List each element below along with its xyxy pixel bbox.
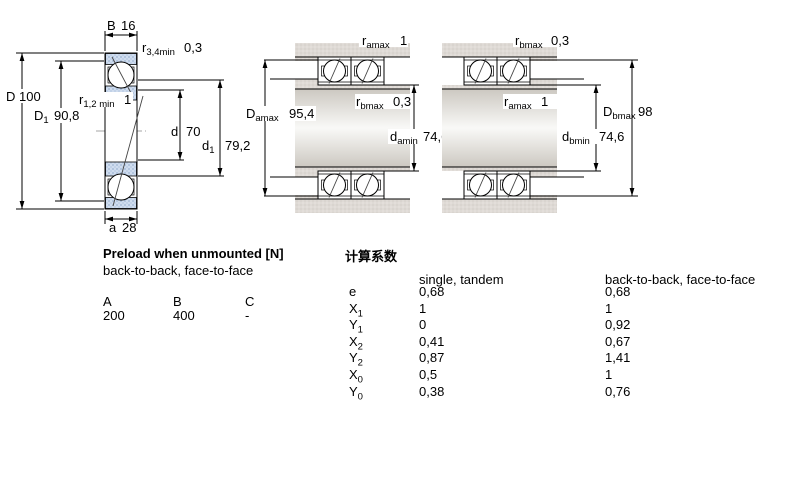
dim-label-D: D100 (6, 89, 41, 104)
preload-col-b: B (173, 294, 182, 309)
factors-title: 计算系数 (345, 246, 397, 265)
bearing-pair-bottom (464, 171, 530, 199)
factor-symbol: Y1 (349, 317, 363, 336)
preload-value-c: - (245, 308, 249, 323)
left-bearing-figure (96, 53, 146, 209)
dim-label-B: B16 (107, 18, 135, 33)
preload-subtitle: back-to-back, face-to-face (103, 263, 253, 278)
factor-value-paired: 1 (605, 367, 612, 382)
dim-label-a: a28 (109, 220, 136, 235)
dim-label-r34min: r3,4min0,3 (142, 40, 202, 58)
factor-value-single: 0,68 (419, 284, 444, 299)
bearing-pair-top (318, 57, 384, 85)
factor-value-paired: 0,67 (605, 334, 630, 349)
preload-value-b: 400 (173, 308, 195, 323)
factor-value-single: 0,38 (419, 384, 444, 399)
factor-value-paired: 1,41 (605, 350, 630, 365)
factor-value-single: 0 (419, 317, 426, 332)
dim-label-D1: D190,8 (34, 108, 79, 126)
factor-symbol: Y2 (349, 350, 363, 369)
factor-symbol: e (349, 284, 356, 303)
factor-value-paired: 0,76 (605, 384, 630, 399)
bearing-pair-top (464, 57, 530, 85)
factor-value-single: 0,87 (419, 350, 444, 365)
factor-value-single: 1 (419, 301, 426, 316)
technical-drawing: B16 r3,4min0,3 D100 D190,8 r1,2 min1 d70… (0, 0, 800, 245)
preload-title: Preload when unmounted [N] (103, 246, 284, 261)
dim-label-d1: d179,2 (202, 138, 250, 156)
factor-value-single: 0,41 (419, 334, 444, 349)
right-mounting-figure: rbmax0,3 ramax1 Dbmax98 dbmin74,6 (442, 33, 652, 213)
factor-symbol: X0 (349, 367, 363, 386)
factor-value-single: 0,5 (419, 367, 437, 382)
factor-value-paired: 1 (605, 301, 612, 316)
preload-col-a: A (103, 294, 112, 309)
factors-table: 计算系数 single, tandem back-to-back, face-t… (345, 246, 785, 406)
preload-table: Preload when unmounted [N] back-to-back,… (103, 246, 323, 336)
factor-value-paired: 0,92 (605, 317, 630, 332)
bearing-pair-bottom (318, 171, 384, 199)
dim-label-d: d70 (171, 124, 200, 139)
factor-value-paired: 0,68 (605, 284, 630, 299)
preload-col-c: C (245, 294, 254, 309)
dim-label-Dbmax: Dbmax98 (603, 104, 652, 122)
middle-mounting-figure: ramax1 rbmax0,3 Damax95,4 damin74,6 (243, 33, 450, 213)
factor-symbol: Y0 (349, 384, 363, 403)
preload-value-a: 200 (103, 308, 125, 323)
